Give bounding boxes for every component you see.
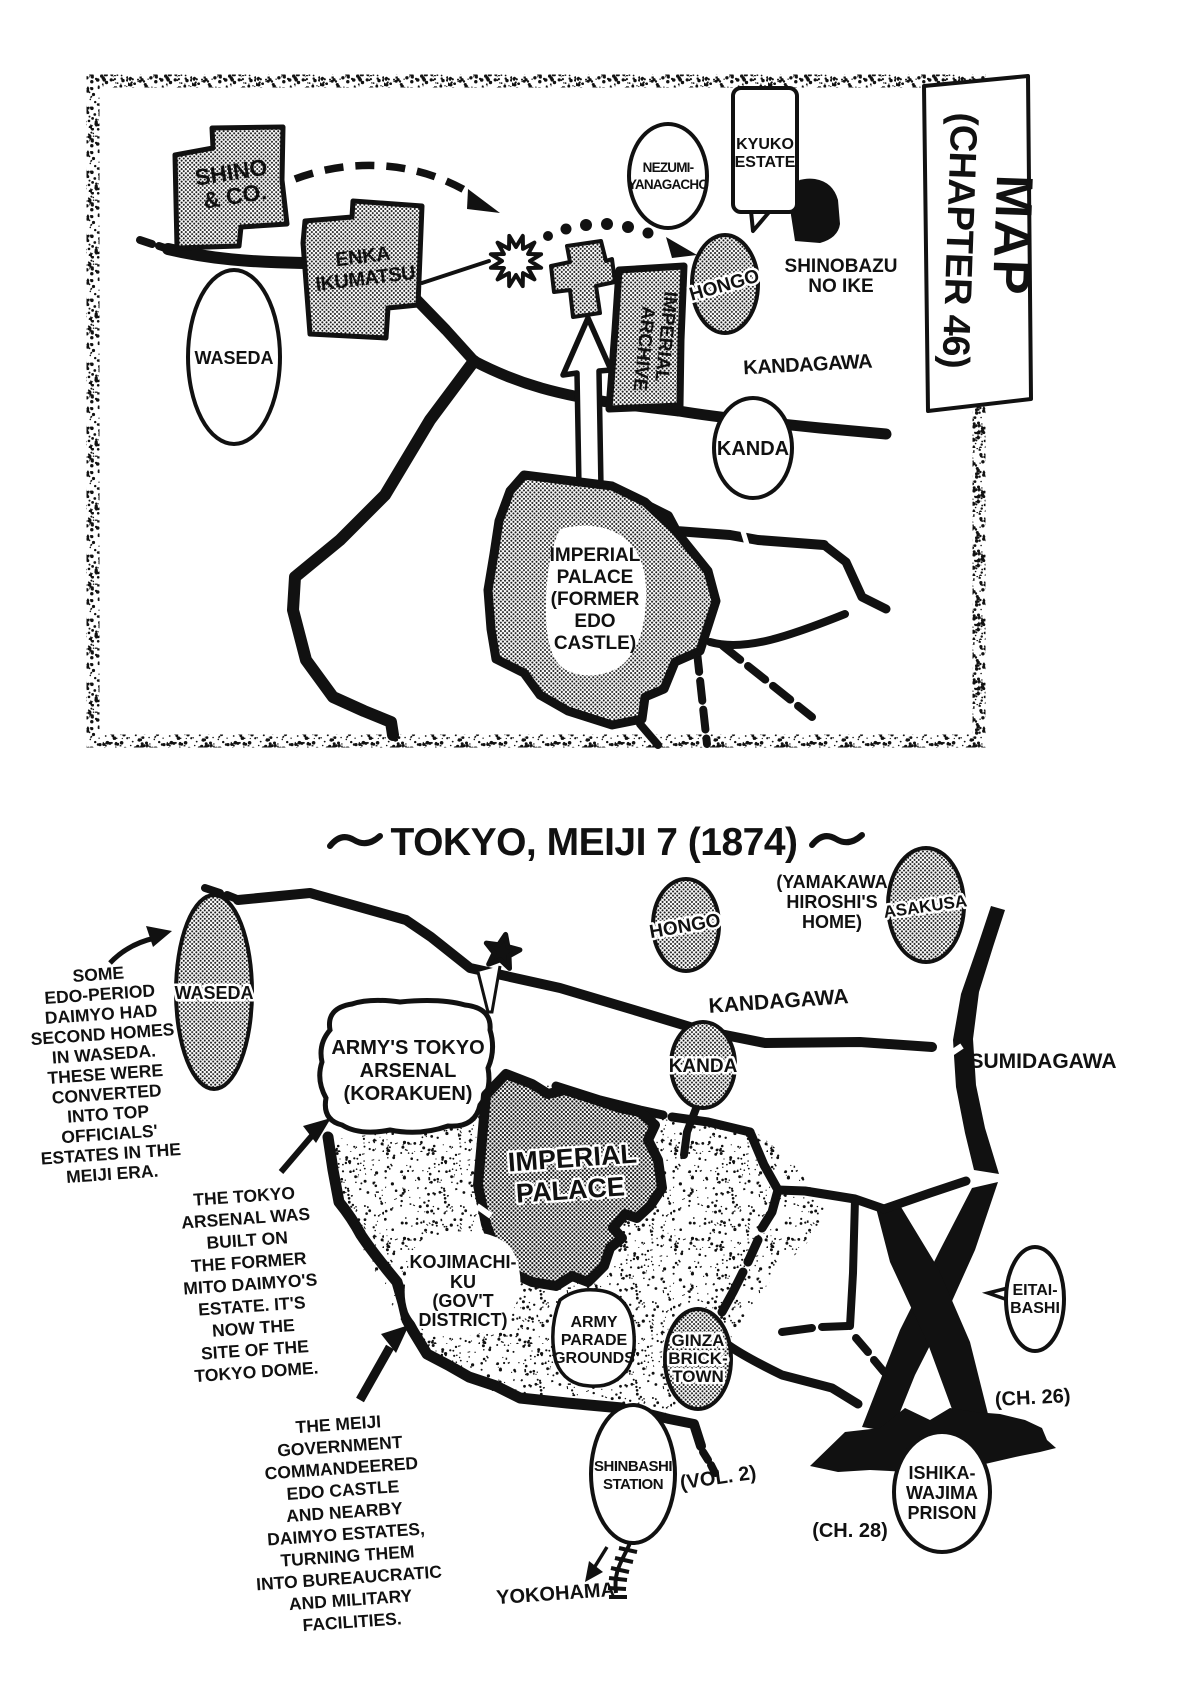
svg-text:(GOV'T: (GOV'T	[432, 1291, 493, 1311]
svg-text:EITAI-: EITAI-	[1012, 1282, 1057, 1299]
svg-text:PRISON: PRISON	[907, 1503, 976, 1523]
svg-text:YANAGACHO: YANAGACHO	[628, 177, 708, 192]
svg-text:HIROSHI'S: HIROSHI'S	[786, 892, 877, 912]
svg-text:KU: KU	[450, 1272, 476, 1292]
svg-text:WASEDA: WASEDA	[174, 983, 253, 1003]
svg-text:TOKYO, MEIJI 7 (1874): TOKYO, MEIJI 7 (1874)	[390, 821, 797, 864]
svg-text:(FORMER: (FORMER	[551, 589, 640, 610]
svg-text:NEZUMI-: NEZUMI-	[643, 160, 694, 175]
svg-text:ESTATE: ESTATE	[735, 154, 796, 171]
svg-text:ARSENAL: ARSENAL	[360, 1060, 457, 1082]
svg-text:BASHI: BASHI	[1010, 1300, 1060, 1317]
svg-text:EDO: EDO	[574, 611, 615, 632]
svg-text:STATION: STATION	[603, 1476, 663, 1493]
svg-text:(CH. 28): (CH. 28)	[812, 1520, 888, 1542]
svg-text:KANDA: KANDA	[669, 1056, 738, 1077]
svg-text:PALACE: PALACE	[557, 567, 634, 588]
svg-text:SUMIDAGAWA: SUMIDAGAWA	[970, 1050, 1117, 1073]
svg-text:NO IKE: NO IKE	[808, 276, 873, 297]
svg-text:KOJIMACHI-: KOJIMACHI-	[410, 1252, 517, 1272]
svg-text:BRICK-: BRICK-	[668, 1349, 728, 1368]
svg-text:GROUNDS: GROUNDS	[553, 1350, 635, 1367]
svg-text:GINZA: GINZA	[672, 1331, 725, 1350]
svg-text:KYUKO: KYUKO	[736, 136, 794, 153]
svg-text:(KORAKUEN): (KORAKUEN)	[344, 1083, 473, 1105]
svg-text:SHINBASHI: SHINBASHI	[594, 1458, 672, 1475]
svg-text:CASTLE): CASTLE)	[554, 633, 636, 654]
svg-text:IMPERIAL: IMPERIAL	[550, 545, 641, 566]
svg-text:(CHAPTER 46): (CHAPTER 46)	[934, 112, 985, 369]
svg-text:ARMY'S TOKYO: ARMY'S TOKYO	[331, 1037, 484, 1059]
svg-text:SHINOBAZU: SHINOBAZU	[785, 256, 898, 277]
svg-text:(YAMAKAWA: (YAMAKAWA	[776, 872, 887, 892]
svg-text:MAP: MAP	[981, 174, 1043, 298]
svg-text:ISHIKA-: ISHIKA-	[909, 1463, 976, 1483]
svg-text:TOWN: TOWN	[672, 1367, 724, 1386]
svg-text:DISTRICT): DISTRICT)	[419, 1310, 508, 1330]
svg-text:HOME): HOME)	[802, 912, 862, 932]
svg-text:(CH. 26): (CH. 26)	[994, 1385, 1071, 1411]
svg-text:WASEDA: WASEDA	[194, 348, 273, 368]
svg-text:WAJIMA: WAJIMA	[906, 1483, 978, 1503]
svg-text:KANDA: KANDA	[717, 438, 789, 460]
svg-text:PARADE: PARADE	[561, 1332, 628, 1349]
svg-text:ARMY: ARMY	[570, 1314, 617, 1331]
